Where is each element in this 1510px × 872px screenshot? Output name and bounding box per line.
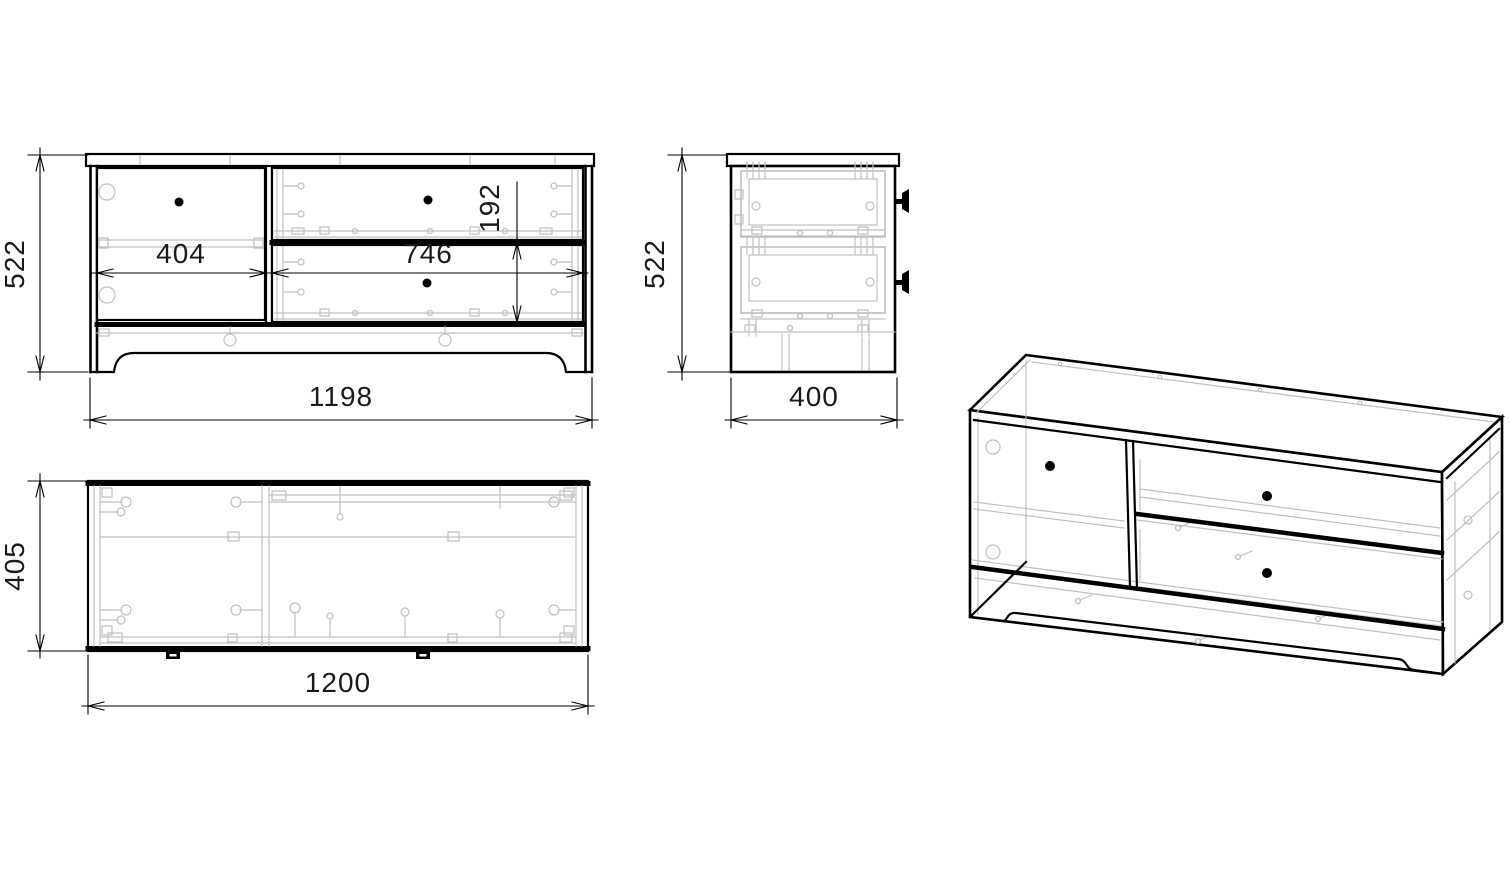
technical-drawing-canvas: 522 404 746 192 1198 — [0, 0, 1510, 872]
drawer-knob — [423, 279, 432, 288]
dimension-label: 1198 — [309, 381, 373, 412]
dimension-label: 405 — [0, 541, 30, 591]
dimension-top-depth: 405 — [0, 474, 88, 658]
drawer-knob — [1262, 568, 1272, 578]
dimension-top-width: 1200 — [82, 655, 594, 714]
door-knob — [175, 198, 184, 207]
door-knob — [1045, 461, 1055, 471]
top-view-outline — [88, 481, 588, 651]
top-view: 405 1200 — [0, 474, 594, 714]
extension-line — [28, 155, 88, 372]
construction-lines — [97, 327, 583, 346]
drawer-knob — [424, 196, 433, 205]
top-view-knob — [416, 651, 430, 659]
dimension-side-depth: 400 — [725, 378, 903, 428]
drawer-knob — [1262, 491, 1272, 501]
plinth-arch — [91, 353, 593, 372]
top-view-knob — [166, 651, 180, 659]
dimension-label: 522 — [0, 239, 30, 289]
dimension-side-height: 522 — [639, 148, 731, 380]
side-carcass — [731, 166, 895, 372]
side-view: 522 400 — [639, 148, 909, 428]
dimension-label: 400 — [789, 381, 839, 412]
dimension-label: 746 — [403, 238, 453, 269]
extension-line — [668, 155, 731, 372]
dimension-label: 404 — [156, 238, 206, 269]
dimension-label: 1200 — [305, 667, 371, 698]
dimension-front-width: 1198 — [84, 378, 598, 428]
front-view: 522 404 746 192 1198 — [0, 148, 598, 428]
dimension-label: 522 — [639, 239, 670, 289]
extension-line — [28, 481, 88, 651]
dimension-front-height: 522 — [0, 148, 88, 380]
dimension-label: 192 — [474, 183, 505, 233]
isometric-view — [970, 355, 1502, 674]
